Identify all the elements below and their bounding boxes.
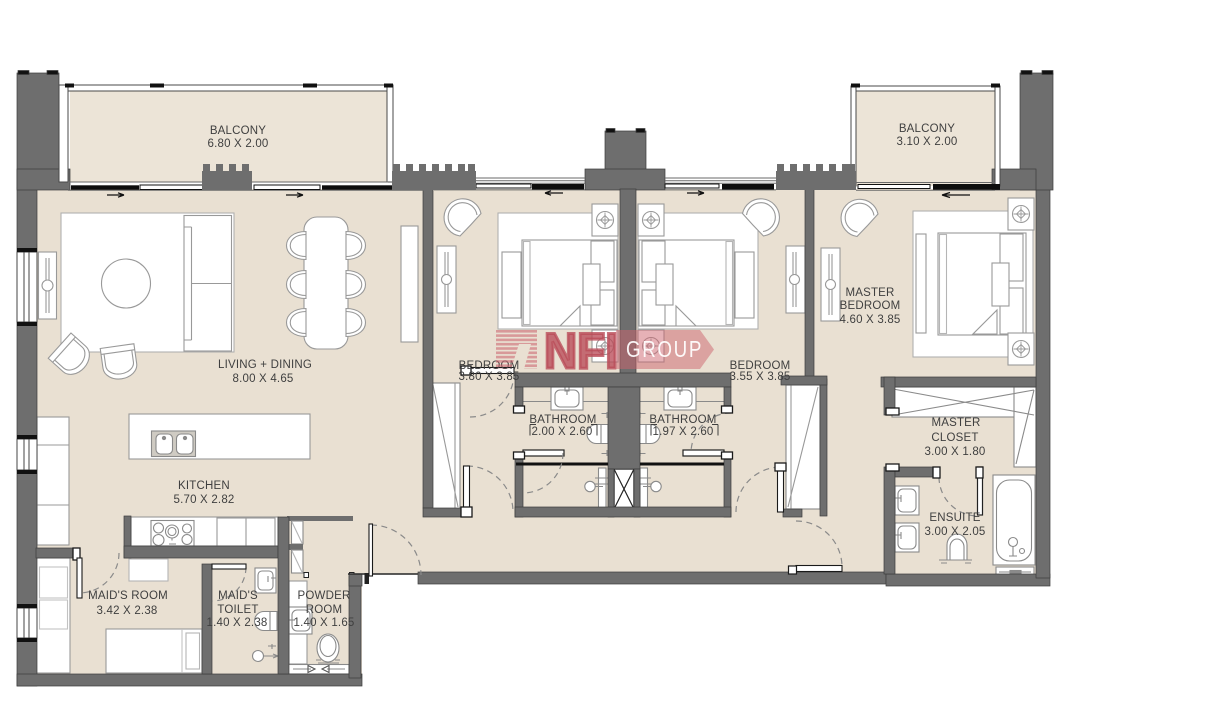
svg-text:3.10 X 2.00: 3.10 X 2.00	[896, 136, 957, 148]
svg-text:POWDER: POWDER	[298, 590, 351, 602]
svg-text:MAID'S: MAID'S	[218, 590, 258, 602]
svg-text:KITCHEN: KITCHEN	[178, 480, 230, 492]
svg-text:3.42 X 2.38: 3.42 X 2.38	[96, 605, 157, 617]
svg-text:1.40 X 1.65: 1.40 X 1.65	[293, 617, 354, 629]
svg-text:BATHROOM: BATHROOM	[649, 414, 716, 426]
svg-text:GROUP: GROUP	[626, 336, 703, 362]
svg-text:MASTER: MASTER	[845, 287, 894, 299]
svg-text:8.00 X 4.65: 8.00 X 4.65	[232, 373, 293, 385]
svg-text:MAID'S ROOM: MAID'S ROOM	[88, 590, 168, 602]
svg-text:MASTER: MASTER	[931, 417, 980, 429]
svg-text:LIVING + DINING: LIVING + DINING	[218, 359, 312, 371]
svg-text:3.00 X 1.80: 3.00 X 1.80	[924, 446, 985, 458]
svg-text:5.70 X 2.82: 5.70 X 2.82	[173, 494, 234, 506]
svg-text:BALCONY: BALCONY	[899, 123, 955, 135]
svg-text:2.00 X 2.60: 2.00 X 2.60	[531, 426, 592, 438]
svg-text:1.97 X 2.60: 1.97 X 2.60	[652, 426, 713, 438]
svg-text:4.60 X 3.85: 4.60 X 3.85	[839, 314, 900, 326]
svg-text:3.00 X 2.05: 3.00 X 2.05	[924, 526, 985, 538]
svg-text:BALCONY: BALCONY	[210, 125, 266, 137]
svg-text:BEDROOM: BEDROOM	[840, 300, 901, 312]
svg-text:NFI: NFI	[544, 323, 618, 379]
svg-text:BATHROOM: BATHROOM	[529, 414, 596, 426]
svg-text:ROOM: ROOM	[306, 604, 343, 616]
svg-text:1.40 X 2.38: 1.40 X 2.38	[206, 617, 267, 629]
svg-text:3.55 X 3.85: 3.55 X 3.85	[729, 371, 790, 383]
svg-text:TOILET: TOILET	[217, 604, 258, 616]
svg-text:ENSUITE: ENSUITE	[929, 512, 980, 524]
svg-text:CLOSET: CLOSET	[931, 432, 978, 444]
svg-text:6.80 X 2.00: 6.80 X 2.00	[207, 138, 268, 150]
svg-text:3.80 X 3.85: 3.80 X 3.85	[458, 371, 519, 383]
